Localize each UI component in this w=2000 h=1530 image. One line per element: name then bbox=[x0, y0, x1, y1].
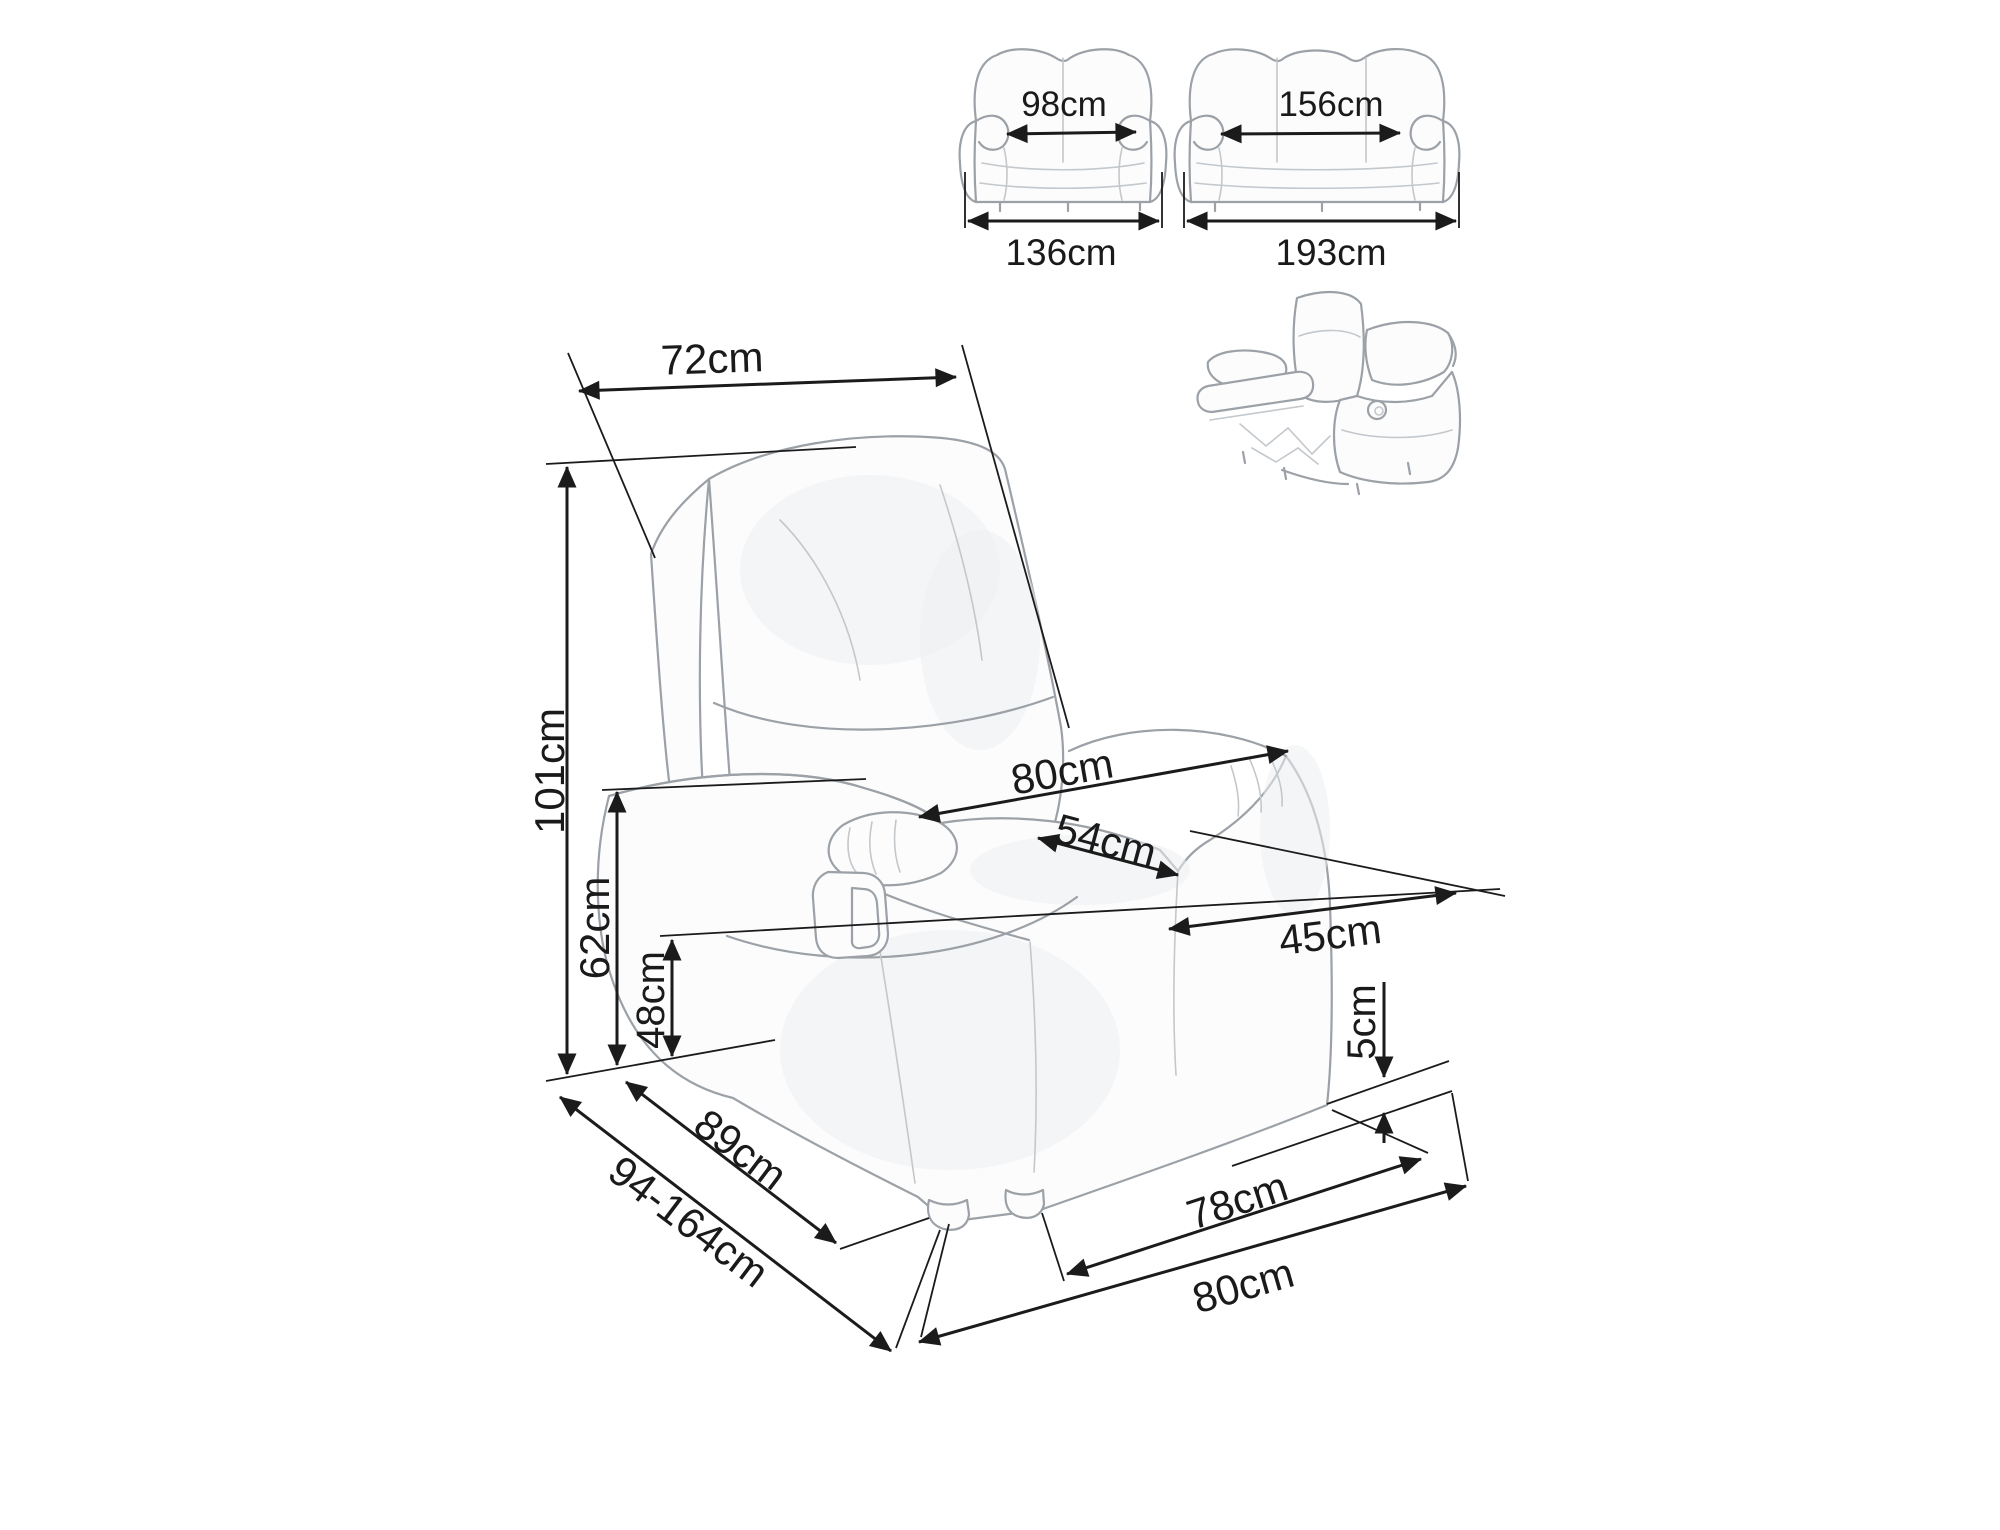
recliner-handle-icon bbox=[813, 872, 888, 958]
dim-label-seat-height: 48cm bbox=[629, 951, 673, 1049]
sofa2-feet bbox=[1000, 202, 1140, 211]
dim-label-sofa2-overall: 136cm bbox=[1005, 232, 1116, 273]
loveseat-mechanism bbox=[1240, 424, 1330, 464]
loveseat-base bbox=[1282, 470, 1348, 484]
dim-label-armrest-height: 62cm bbox=[571, 877, 618, 980]
dim-label-backrest-width: 72cm bbox=[660, 333, 764, 384]
front-shading bbox=[780, 930, 1120, 1170]
armchair-front-right-foot bbox=[1006, 1190, 1044, 1218]
right-arm-shading bbox=[1260, 745, 1330, 915]
dim-line bbox=[1007, 132, 1136, 134]
loveseat-right-backrest bbox=[1365, 322, 1452, 385]
extension-line bbox=[1452, 1093, 1468, 1181]
dim-line bbox=[1221, 133, 1400, 134]
dim-label-base-depth: 78cm bbox=[1181, 1162, 1293, 1238]
armchair-back-panel bbox=[651, 479, 709, 808]
sofa-three-seater-sketch bbox=[1175, 49, 1460, 211]
extension-line bbox=[840, 1218, 929, 1249]
dim-label-sofa3-inner: 156cm bbox=[1278, 85, 1383, 124]
sofa3-feet bbox=[1215, 202, 1420, 211]
dim-label-ground-clearance: 5cm bbox=[1340, 984, 1384, 1060]
reclined-loveseat-sketch bbox=[1197, 292, 1460, 494]
dim-line bbox=[579, 377, 956, 391]
extension-line bbox=[1042, 1213, 1064, 1281]
furniture-dimension-diagram: 98cm 136cm 156cm 193cm 72cm 101cm 62cm bbox=[0, 0, 2000, 1530]
dim-seat-height: 48cm bbox=[629, 940, 673, 1056]
diagram-svg: 98cm 136cm 156cm 193cm 72cm 101cm 62cm bbox=[0, 0, 2000, 1530]
extension-line bbox=[568, 353, 655, 558]
sofa3-backrest bbox=[1190, 49, 1445, 202]
dim-label-sofa3-overall: 193cm bbox=[1275, 232, 1386, 273]
dim-label-sofa2-inner: 98cm bbox=[1021, 85, 1107, 124]
dim-label-overall-height: 101cm bbox=[526, 708, 573, 834]
sofa-two-seater-sketch bbox=[960, 49, 1167, 211]
